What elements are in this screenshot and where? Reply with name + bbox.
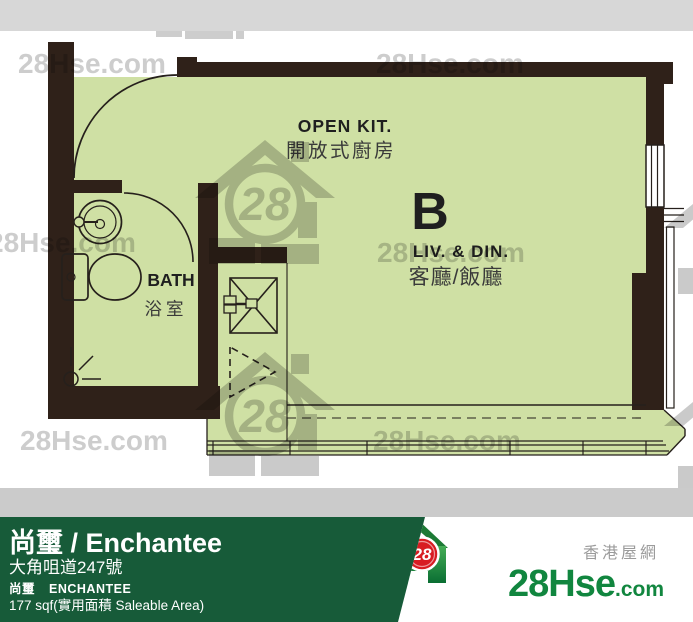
floorplan-page: 28	[0, 0, 693, 622]
wall-right-upper	[646, 77, 664, 145]
bath-label-zh: 浴室	[145, 299, 188, 319]
brand-name-suffix: .com	[615, 578, 664, 602]
bath-label-en: BATH	[147, 270, 194, 290]
wall-right-mid	[646, 207, 664, 273]
wall-middle	[198, 183, 218, 419]
brand-name: 28Hse.com	[508, 563, 664, 606]
kitchen-label-en: OPEN KIT.	[298, 116, 393, 136]
watermark-text: 28Hse.com	[18, 48, 166, 79]
wall-bottom	[48, 386, 220, 419]
living-label-zh: 客廳/飯廳	[409, 266, 504, 289]
exterior-wall-line	[667, 227, 675, 408]
brand-name-main: 28Hse	[508, 563, 615, 606]
footer-brand-area: 28 香港屋網 28Hse.com	[388, 517, 693, 622]
top-gray-band	[0, 0, 693, 31]
watermark-text: 28Hse.com	[373, 425, 521, 456]
unit-label: B	[411, 183, 449, 241]
window-right	[646, 145, 664, 207]
wall-right-lower	[632, 273, 664, 410]
watermark-text: 28Hse.com	[377, 237, 525, 268]
watermark-text: 28Hse.com	[376, 48, 524, 79]
top-watermark-fragment	[156, 31, 244, 39]
watermark-text: 28Hse.com	[20, 425, 168, 456]
project-address: 大角咀道247號	[9, 553, 122, 578]
divider-band	[0, 488, 693, 517]
wall-bath-top	[48, 180, 122, 193]
watermark-text: 28Hse.com	[0, 227, 136, 258]
saleable-area: 177 sqf(實用面積 Saleable Area)	[9, 594, 204, 614]
entrance-door-jamb	[177, 57, 197, 77]
brand-tagline: 香港屋網	[583, 539, 659, 563]
